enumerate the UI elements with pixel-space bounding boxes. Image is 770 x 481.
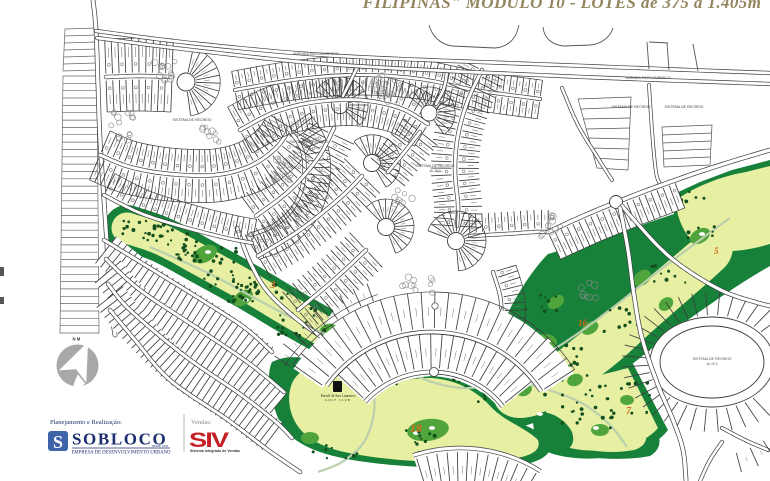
svg-text:SISTEMA DE RECREIO: SISTEMA DE RECREIO bbox=[693, 357, 732, 361]
svg-text:Av-18-2: Av-18-2 bbox=[429, 169, 440, 173]
svg-text:SISTEMA DE RECREIO: SISTEMA DE RECREIO bbox=[665, 105, 704, 109]
svg-text:Sistema Integrado de Vendas: Sistema Integrado de Vendas bbox=[190, 449, 240, 453]
svg-text:3: 3 bbox=[269, 279, 276, 291]
svg-text:SISTEMA DE RECREIO: SISTEMA DE RECREIO bbox=[416, 164, 455, 168]
svg-text:SISTEMA DE RECREIO: SISTEMA DE RECREIO bbox=[173, 118, 212, 122]
svg-text:16: 16 bbox=[578, 318, 588, 328]
svg-text:Vendas:: Vendas: bbox=[191, 419, 212, 426]
svg-text:18: 18 bbox=[410, 421, 422, 435]
svg-text:GOLF CLUB: GOLF CLUB bbox=[325, 398, 351, 402]
svg-text:Av-19-2: Av-19-2 bbox=[706, 362, 717, 366]
svg-text:DESDE 1956: DESDE 1956 bbox=[152, 444, 169, 448]
svg-text:S: S bbox=[53, 432, 63, 452]
svg-text:SISTEMA DE RECREIO: SISTEMA DE RECREIO bbox=[290, 140, 329, 144]
svg-text:EMPRESA DE DESENVOLVIMENTO: EMPRESA DE DESENVOLVIMENTO URBANO bbox=[71, 451, 171, 456]
svg-text:AVENIDA SAO LOURENCO: AVENIDA SAO LOURENCO bbox=[625, 76, 670, 80]
svg-text:5: 5 bbox=[714, 246, 719, 256]
svg-text:FILIPINAS" MODULO 10 - LOTES d: FILIPINAS" MODULO 10 - LOTES de 375 a 1.… bbox=[362, 0, 762, 12]
svg-text:N M: N M bbox=[73, 337, 81, 342]
svg-text:SISTEMA DE RECREIO: SISTEMA DE RECREIO bbox=[612, 105, 651, 109]
svg-text:AVENIDA SAO LOURENCO: AVENIDA SAO LOURENCO bbox=[293, 52, 338, 56]
svg-text:Planejamento e Realização:: Planejamento e Realização: bbox=[50, 419, 122, 426]
